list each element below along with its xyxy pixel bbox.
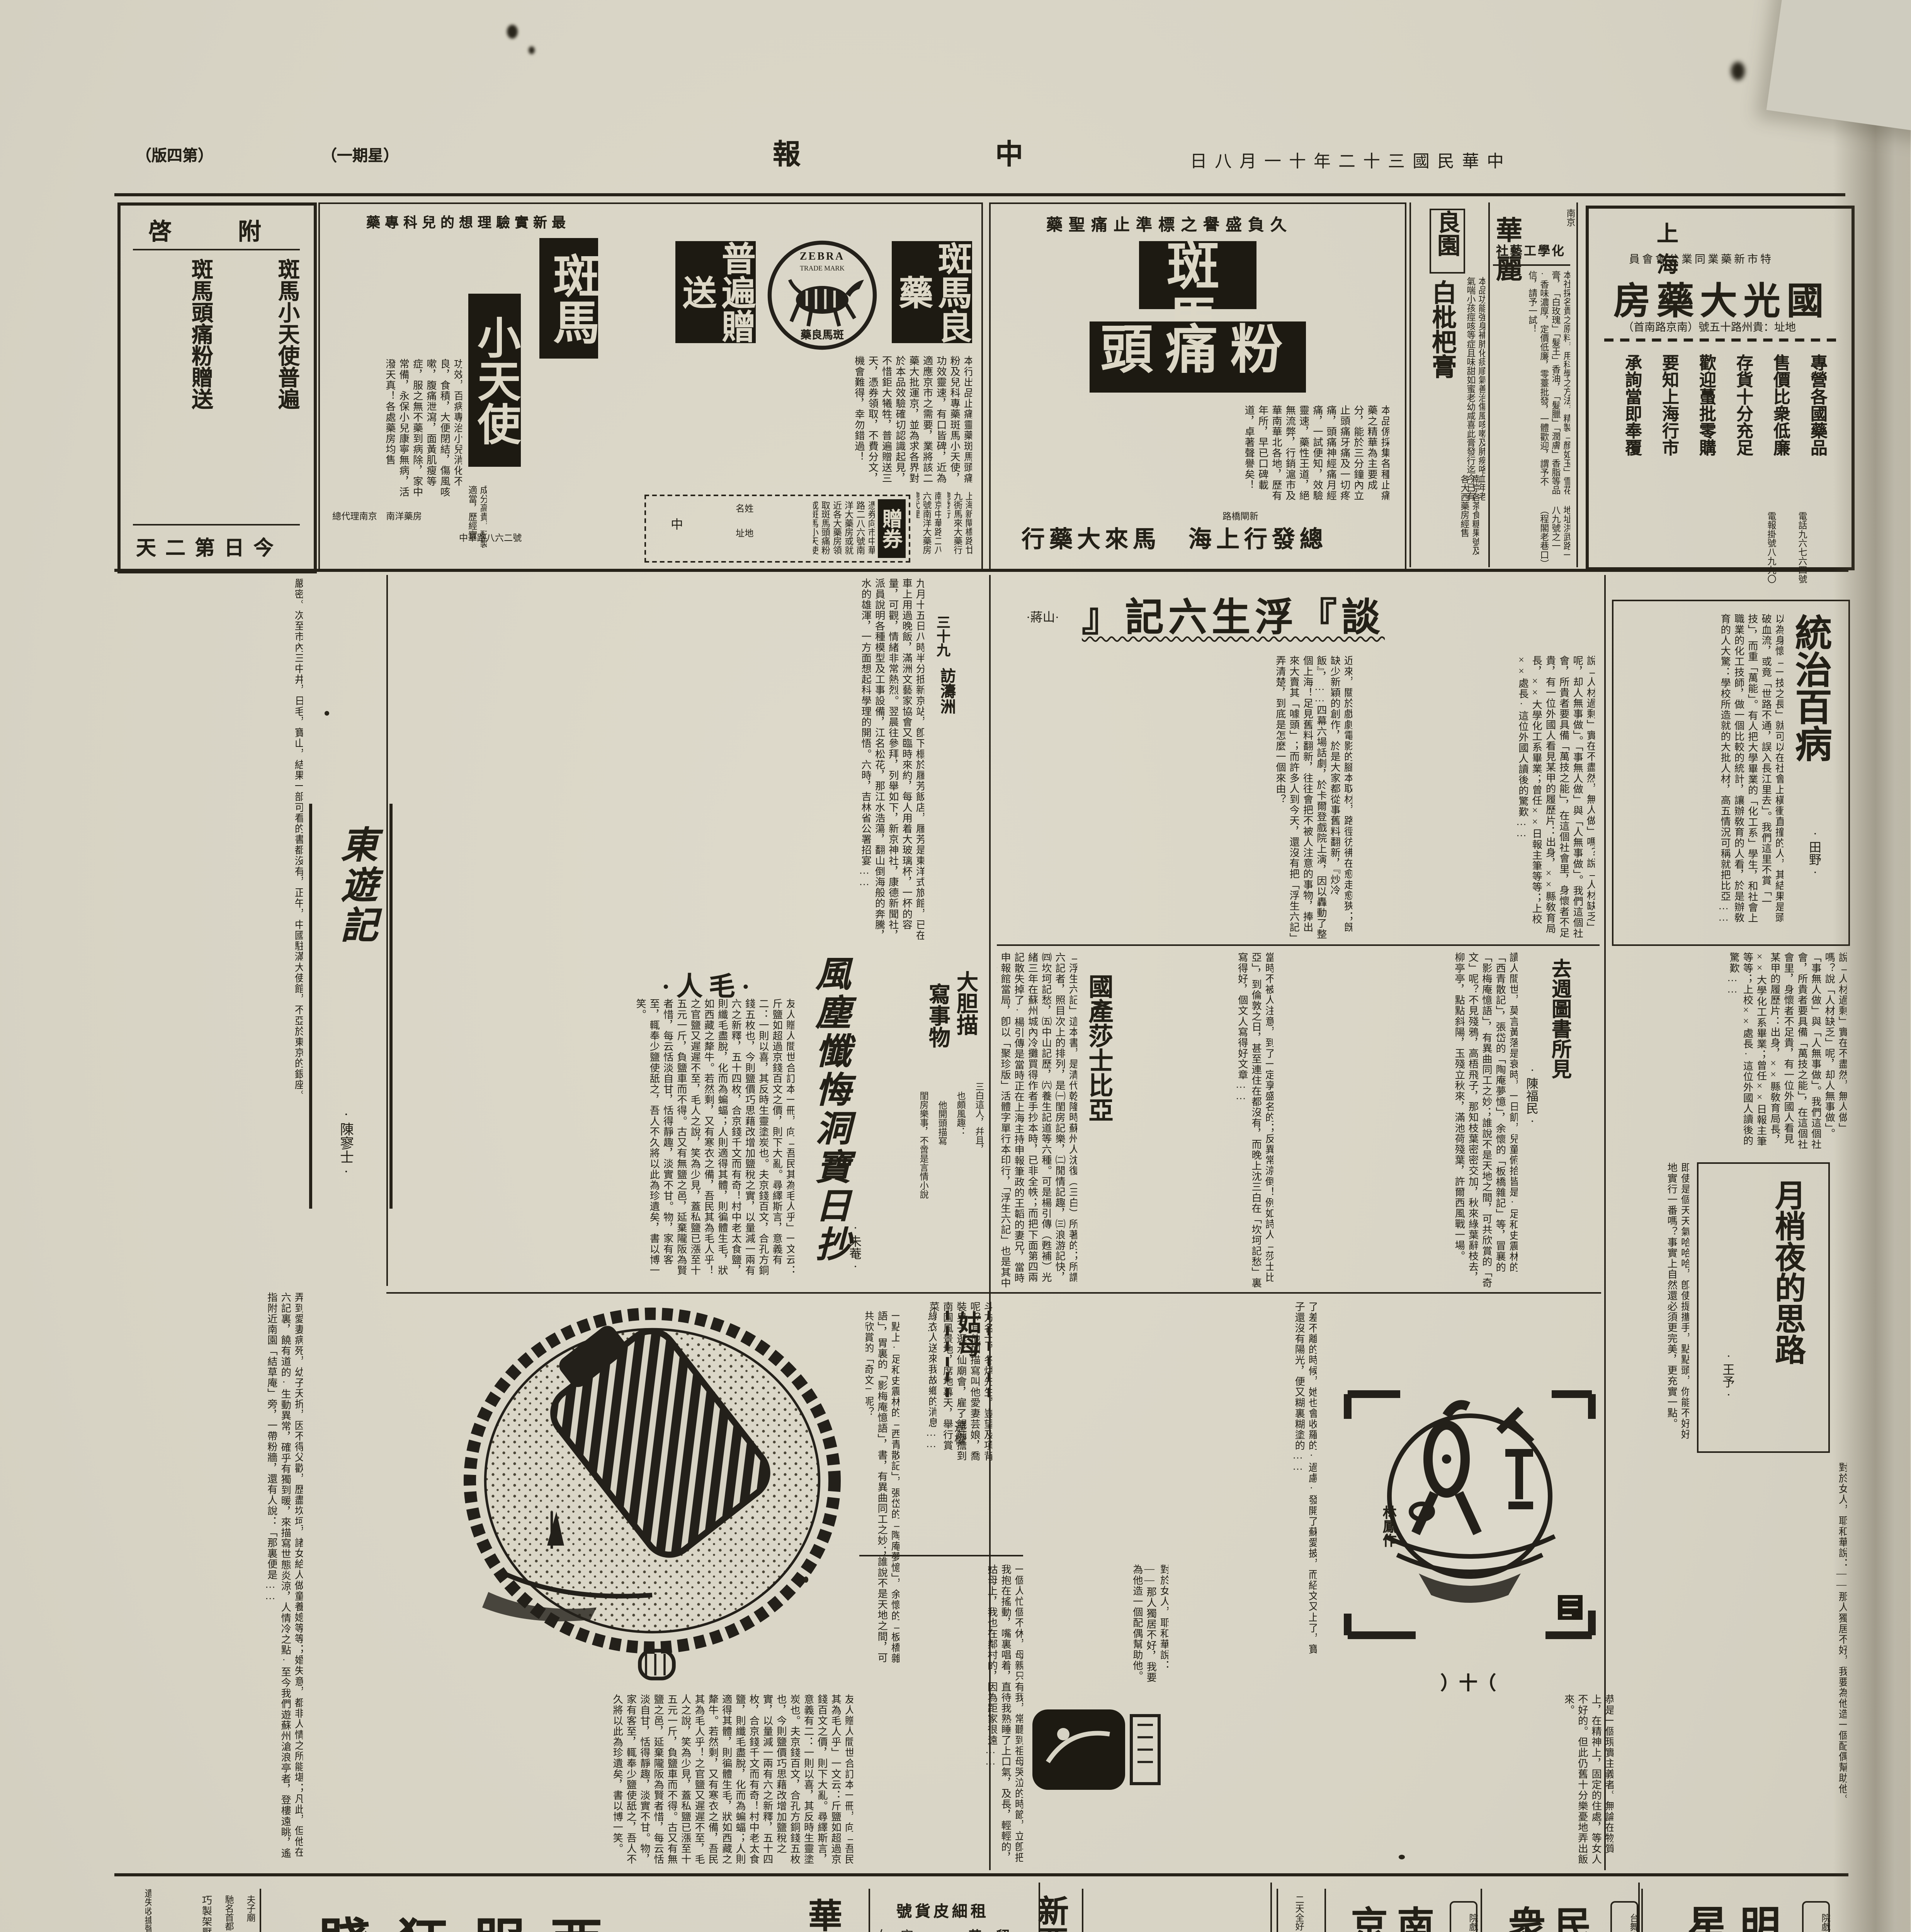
jinling-fame: 馳名首都: [220, 1895, 232, 1932]
gumu-author: ·達權·: [952, 1406, 969, 1484]
shi-illustration: 林鳳作: [1326, 1363, 1613, 1660]
jinling-product: 巧製架壓燒鴨: [197, 1895, 210, 1932]
nanjing-type: 院戲大: [1450, 1901, 1477, 1932]
toufen-footer: 行藥大來馬 海上行發總: [1022, 522, 1328, 555]
maoren-title: ·人毛·: [661, 964, 756, 1003]
zebra-body-left: 功效，百病專治小兒消化不良，食積，大便閉結，傷風咳嗽，腹痛泄瀉，面黃肌瘦等症，服…: [332, 359, 462, 507]
fengchen-title: 風塵懺悔洞寶日抄: [810, 955, 847, 1298]
dongyou-author: ·陳寥士·: [337, 1107, 357, 1199]
washington-name: 華盛頓: [797, 1898, 847, 1932]
article-dongyou-titlebox: 東遊記 ·陳寥士·: [309, 804, 393, 1209]
xinya-name: 新亞: [1028, 1895, 1073, 1932]
liangyuan-product: 白枇杷膏: [1426, 280, 1454, 465]
mingxing-house: 星明: [1688, 1895, 1793, 1932]
qutu-author: ·陳福民·: [1524, 1063, 1541, 1156]
fusheng-body2b: 說「人材過剩」實在不盡然，無人做」嗎？說「人材缺乏」呢，却人無事做」。「事無人做…: [1612, 952, 1847, 1153]
fusheng-headline: 』記六生浮『談: [1082, 587, 1385, 643]
theater-nanjing: 京南 院戲大 團劇丹牡 張如庭 玉牡丹 銀牡丹 新牡丹 粉牡丹 紅牡丹 小粉牡丹…: [1326, 1889, 1482, 1932]
ad-xinya: 新亞 號貨皮細租 貂獺狐裘 花色俱全 定做翻新 女子大衣 洋還退包合不價貨 號九…: [869, 1889, 1083, 1932]
fuqi-line2: 斑馬頭痛粉贈送: [186, 258, 212, 521]
dongyou-chapter-number: 三十九: [933, 615, 954, 662]
guoguang-addr: （首南路京南）號五十路州貴：址地: [1623, 320, 1796, 335]
theater-mingxing: 星明 院戲大 客觀都首動轟牌頭塊三 王大手出武文 樓少王 席首衫花角坤 心琴劉 …: [1641, 1889, 1833, 1932]
toufen-footer-small: 路橋閘新: [1222, 513, 1258, 525]
toufen-tagline: 藥聖痛止準標之譽盛負久: [1046, 213, 1293, 236]
theater-minzhong: 衆民 台舞大 七六六三二：話電 一停今紀東保 天演天念亞衝 （聘禮金重台本） 泰…: [1481, 1889, 1643, 1932]
ink-blotch: [507, 25, 518, 39]
page-fold-shadow: [1833, 0, 1910, 1932]
gumu-intro: 綠衣人送來我故鄉的消息……: [903, 1311, 937, 1543]
washington-headline: 賤狂服西: [318, 1901, 627, 1932]
fusheng-body3: 「浮生六記」這本書，是清代乾隆時蘇州人沈復（三白）所著的；所謂六記者，照目次上的…: [997, 952, 1077, 1289]
toufen-body: 本品係採集各種止痛藥之精華為主要成分，能於三分鐘內立止頭痛牙痛及一切疼痛，頭痛神…: [1006, 405, 1389, 510]
zebra-logo-icon: ZEBRA TRADE MARK 藥良馬斑: [765, 238, 879, 352]
zebra-brand-boxes: 斑馬良藥: [892, 241, 972, 343]
small-inline-ad: [1026, 1700, 1168, 1799]
qutu-title: 去週圖書所見: [1545, 958, 1575, 1144]
fusheng-author: ·蔣山·: [1026, 609, 1059, 626]
dadan-pre2: 也頗風趣：: [952, 1091, 964, 1184]
coupon-body: 憑券向市中華路二八六號南洋大藥房或就近各大藥房領取斑馬頭痛粉或斑馬小天使一包為限…: [813, 501, 875, 556]
tongzhi-title: 統治百病: [1782, 614, 1836, 815]
lihua-body: 本社採名貴之原料，用科學之方法，精製「顏如玉」雪花膏，「白玫瑰」「髮王」香油，「…: [1493, 270, 1570, 502]
guoguang-col-3: 存貨十分充足: [1731, 354, 1756, 524]
zebra-tagline: 藥專科兒的想理驗實新最: [366, 212, 570, 232]
fusheng-body2: 說「人材過剩」實在不盡然，無人做」嗎？說「人材缺乏」呢，却人無事做」。「事無人做…: [1360, 655, 1595, 940]
guoguang-member: 員會會公業同業藥新市特: [1629, 252, 1773, 267]
masthead-title: 報 中: [773, 133, 1069, 173]
dadan-pre1: 三白這人，幷且，: [971, 1082, 982, 1221]
liangyuan-body: 本品功能強身補肺化痰順氣善治傷風咳嗽及肺癆咯血年老氣喘小孩痙咳等症且味甜如蜜老幼…: [1464, 277, 1485, 509]
guoguang-wire: 電報掛號八九九〇: [1763, 512, 1774, 604]
ad-zebra-xiaotianshi: 藥專科兒的想理驗實新最 斑馬 小天使 功效，百病專治小兒消化不良，食積，大便閉結…: [318, 202, 983, 570]
ad-toutongfen: 藥聖痛止準標之譽盛負久 斑馬 頭痛粉 本品係採集各種止痛藥之精華為主要成分，能於…: [989, 202, 1406, 570]
zebra-logo-word: ZEBRA: [765, 250, 879, 263]
toufen-big-banma: 斑馬: [1139, 241, 1256, 309]
xinya-line1: 貂獺狐裘: [992, 1929, 1009, 1932]
maoren-body: 友人贈人間世合訂本一冊，向「吾民其為毛人乎」一文云：斤鹽如超過京錢百文之價，則下…: [396, 998, 794, 1283]
yueshao-title: 月梢夜的思路: [1765, 1179, 1810, 1427]
tongzhi-author: ·田野·: [1807, 827, 1824, 920]
xinya-line2: 花色俱全: [964, 1929, 981, 1932]
qutu-body: 讀人間世，莫言黃落是衰時，一日飢，兒童俯拾皆是·足和史震林的「西青散記」，張岱的…: [1277, 952, 1518, 1289]
article-yueshao-box: 月梢夜的思路 ·王予·: [1697, 1162, 1830, 1453]
xinya-line3: 定做翻新: [896, 1929, 913, 1932]
gumu-title: 姑母: [946, 1311, 991, 1397]
shi-caption: ）十（: [1391, 1669, 1545, 1696]
article-dongyou-tail: 嚴密。次至市內三中井，日毛，寶山，結果一部可看的書都沒有，正午，中國駐滿大使館，…: [117, 578, 303, 1274]
masthead-rule: [114, 193, 1845, 197]
coupon-label: 贈券: [878, 499, 906, 558]
article-tongzhi-box: 統治百病 ·田野· 以為身懷「一技之長」就可以在社會上橫衝直撞的人，其結果是頭破…: [1612, 600, 1850, 946]
weekday-label: （一期星）: [321, 142, 399, 165]
fusheng-body4: 當時不被人注意，到了一定享盛名的；反異常涼倒！例如詩人「莎士比亞」，到倫敦之日，…: [1119, 952, 1273, 1289]
guoguang-name: 房藥大光國: [1613, 270, 1830, 325]
dongyou-title: 東遊記: [328, 825, 382, 1104]
jinling-place: 夫子廟: [242, 1895, 253, 1932]
minzhong-house: 衆民: [1508, 1895, 1601, 1932]
zebra-big-xiaotianshi: 小天使: [468, 294, 521, 467]
masthead-date: 日八月一十年二十三國民華中: [1190, 148, 1511, 173]
lihua-addr: 地址洪武路一八九號之一（程閣老巷口）: [1493, 505, 1570, 564]
ad-fuqi-box: 啓 附 斑馬小天使普遍 斑馬頭痛粉贈送 天二第日今: [117, 202, 317, 573]
fengchen-author: ·未菴·: [847, 1221, 864, 1289]
mingxing-type: 院戲大: [1802, 1901, 1830, 1932]
torn-corner: [1766, 0, 1911, 136]
dadan-pre3: 他開頭描寫: [933, 1100, 945, 1193]
coupon-center: 中: [671, 518, 683, 534]
guoguang-col-4: 歡迎蠆批零購: [1694, 354, 1719, 524]
dadan-title2: 寫事物: [921, 983, 952, 1091]
fuqi-footer: 天二第日今: [136, 532, 283, 561]
gumu-body: 一個人忙個不休，母親只有我，常聽到祖母哭泣的時節，立卽把我抱在搖動，嘴裏唱着，直…: [859, 1564, 1023, 1867]
ad-guoguang-box: 上 海 員會會公業同業藥新市特 房藥大光國 （首南路京南）號五十路州貴：址地 專…: [1586, 206, 1855, 570]
newspaper-page: （版四第） （一期星） 報 中 日八月一十年二十三國民華中 啓 附 斑馬小天使普…: [0, 0, 1911, 1932]
tongzhi-body: 以為身懷「一技之長」就可以在社會上橫衝直撞的人，其結果是頭破血流，或竟「世路不通…: [1623, 614, 1783, 929]
toufen-big-title: 頭痛粉: [1090, 321, 1306, 393]
zebra-coupon: 贈券 憑券向市中華路二八六號南洋大藥房或就近各大藥房領取斑馬頭痛粉或斑馬小天使一…: [644, 495, 910, 563]
zebra-big-banma: 斑馬: [539, 238, 598, 359]
zebra-logo-cn: 藥良馬斑: [765, 328, 879, 343]
minzhong-type: 台舞大: [1610, 1901, 1638, 1932]
zebra-footer-left: 總代理南京 南洋藥房: [332, 513, 564, 560]
yueshao-body: 即使是個天天氣哈哈哈，卽使提攜手，點點頭，你能不好好地實行一番嗎？事實上自然還必…: [1612, 1162, 1689, 1450]
guoguang-col-2: 售價比衆低廉: [1768, 354, 1793, 524]
dadan-pre4: 閨房樂事，不啻是言情小說: [915, 1091, 927, 1246]
shi-signature: 林鳳作: [1379, 1505, 1397, 1598]
zebra-logo-trademark: TRADE MARK: [765, 264, 879, 272]
liangyuan-name: 良園: [1430, 209, 1465, 274]
guoguang-tel: 電話九六七六四號: [1794, 512, 1805, 604]
guoguang-col-6: 承詢當即奉覆: [1620, 354, 1644, 524]
zebra-side-note: 成分高貴，配製適當，歷經實驗，確具功效: [465, 485, 487, 556]
page-number-label: （版四第）: [136, 142, 213, 165]
dongyou-body: 九月十五日八時半分抵新京站，卽下榻於屩芳飯店，屩芳是東洋式旅館，已在車上用過晚飯…: [389, 578, 924, 949]
guoguang-col-5: 要知上海行市: [1657, 354, 1681, 524]
small-ad-lost-receipt: 遺失收據聲明作廢啓事: [117, 1889, 151, 1932]
lihua-org: 社藝工學化: [1496, 243, 1566, 260]
xinya-type: 號貨皮細租: [896, 1898, 989, 1921]
ad-lihua: 華 麗 南京 社藝工學化 本社採名貴之原料，用科學之方法，精製「顏如玉」雪花膏，…: [1487, 202, 1578, 567]
shi-side-text: 了差不離的時候，她也會收羅的·過慮·發開了蘇愛披，而紹文又上了，寶子還沒有陽光，…: [1190, 1301, 1317, 1657]
ad-liangyuan: 良園 白枇杷膏 本品功能強身補肺化痰順氣善治傷風咳嗽及肺癆咯血年老氣喘小孩痙咳等…: [1409, 202, 1490, 567]
yueshao-body2: 對於女人，耶和華說：——那人獨居不好，我要為他造一個配偶幫助他。: [1612, 1462, 1847, 1864]
shi-note-text: 恭是一個現實主義者。無論在物質上，在精神上，固定的住處，等女人不好的。但此仍舊十…: [1184, 1694, 1613, 1867]
lihua-city: 南京: [1562, 209, 1573, 243]
zebra-dist1: 上海新閘橋路廿九衖馬來大藥行總發行: [947, 492, 972, 560]
ad-shidu: 二天全好 濕毒 救星: [1277, 1889, 1326, 1932]
gumu-illustration: [457, 1298, 856, 1682]
filler-under-oval: 友人贈人間世合訂本一冊，向「吾民其為毛人乎」一文云：斤鹽如超過京錢百文之價，則下…: [389, 1694, 853, 1867]
fusheng-body1: 近來，關於戲劇電影的腳本取材，路徑彷彿在愈走愈狹；旣缺少新穎的創作，於是大家都從…: [997, 655, 1352, 940]
yueshao-author: ·王予·: [1720, 1349, 1737, 1436]
fusheng-subhead: 國產莎士比亞: [1082, 974, 1110, 1159]
dongyou-chapter-title: 訪濤洲: [933, 668, 957, 720]
coupon-addr-field: 址地: [736, 530, 753, 542]
nanjing-house: 京南: [1351, 1895, 1443, 1932]
shidu-tag: 二天全好: [1290, 1895, 1302, 1932]
fuqi-line1: 斑馬小天使普遍: [272, 258, 298, 521]
liangyuan-sellers: 南京各茶食糖果號及各大西藥房經售: [1417, 474, 1479, 561]
zebra-gift-boxes: 普遍贈送: [675, 241, 756, 343]
zebra-body-right: 本行出品止痛靈藥斑馬頭痛粉及兒科專藥斑馬小天使，功效靈速，有口皆碑，近為適應京市…: [635, 355, 972, 488]
filler-mid: 對於女人，耶和華說：——那人獨居不好，我要為他造一個配偶幫助他。: [1026, 1564, 1168, 1688]
zebra-dist2: 南京中華路二八六號南洋大藥房總代理: [916, 492, 941, 560]
ad-washington: 賤狂服西 華盛頓 各色條花呢西服每套3.000. 各色海立司西服每套1.900.…: [263, 1889, 870, 1932]
xinya-line4: 女子大衣: [872, 1929, 889, 1932]
coupon-name-field: 名姓: [736, 505, 753, 517]
fuqi-header: 啓 附: [148, 215, 283, 247]
ad-jinling: 夫子廟 馳名首都 巧製架壓燒鴨 金陵食品公司: [158, 1889, 261, 1932]
guoguang-col-1: 專營各國藥品: [1805, 354, 1830, 524]
filler-left-lower: 弄到愛妻病死，幼子夭折，因不得父歡，歷盡坎坷，諸女給人做童養媳等等；婚失意，都非…: [117, 1292, 303, 1864]
dadan-title1: 大胆描: [949, 971, 980, 1079]
